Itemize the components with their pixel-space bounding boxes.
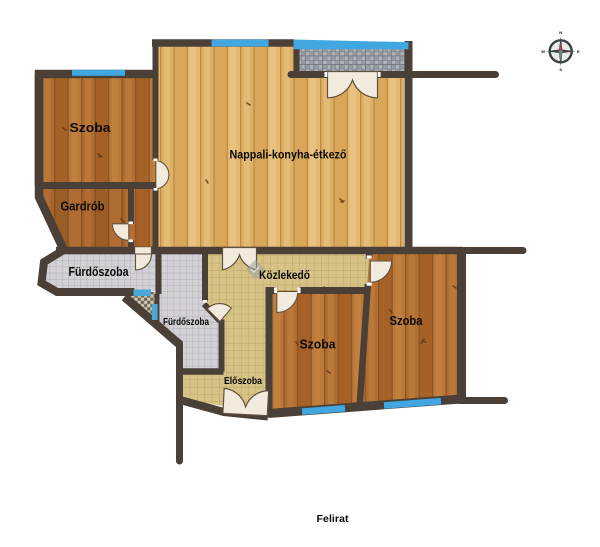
svg-text:Fürdőszoba: Fürdőszoba <box>163 317 209 328</box>
svg-text:Szoba: Szoba <box>300 338 337 352</box>
svg-text:S: S <box>559 67 562 72</box>
svg-text:Előszoba: Előszoba <box>224 375 262 387</box>
svg-text:Szoba: Szoba <box>390 314 424 328</box>
svg-text:W: W <box>541 49 545 54</box>
svg-text:E: E <box>577 49 580 54</box>
svg-text:N: N <box>559 30 562 35</box>
svg-text:Szoba: Szoba <box>70 120 112 135</box>
svg-text:Közlekedő: Közlekedő <box>259 270 310 282</box>
svg-text:Felirat: Felirat <box>317 513 350 525</box>
svg-text:Gardrób: Gardrób <box>61 200 105 214</box>
svg-text:Nappali-konyha-étkező: Nappali-konyha-étkező <box>230 148 347 162</box>
svg-text:Fürdőszoba: Fürdőszoba <box>69 264 130 279</box>
